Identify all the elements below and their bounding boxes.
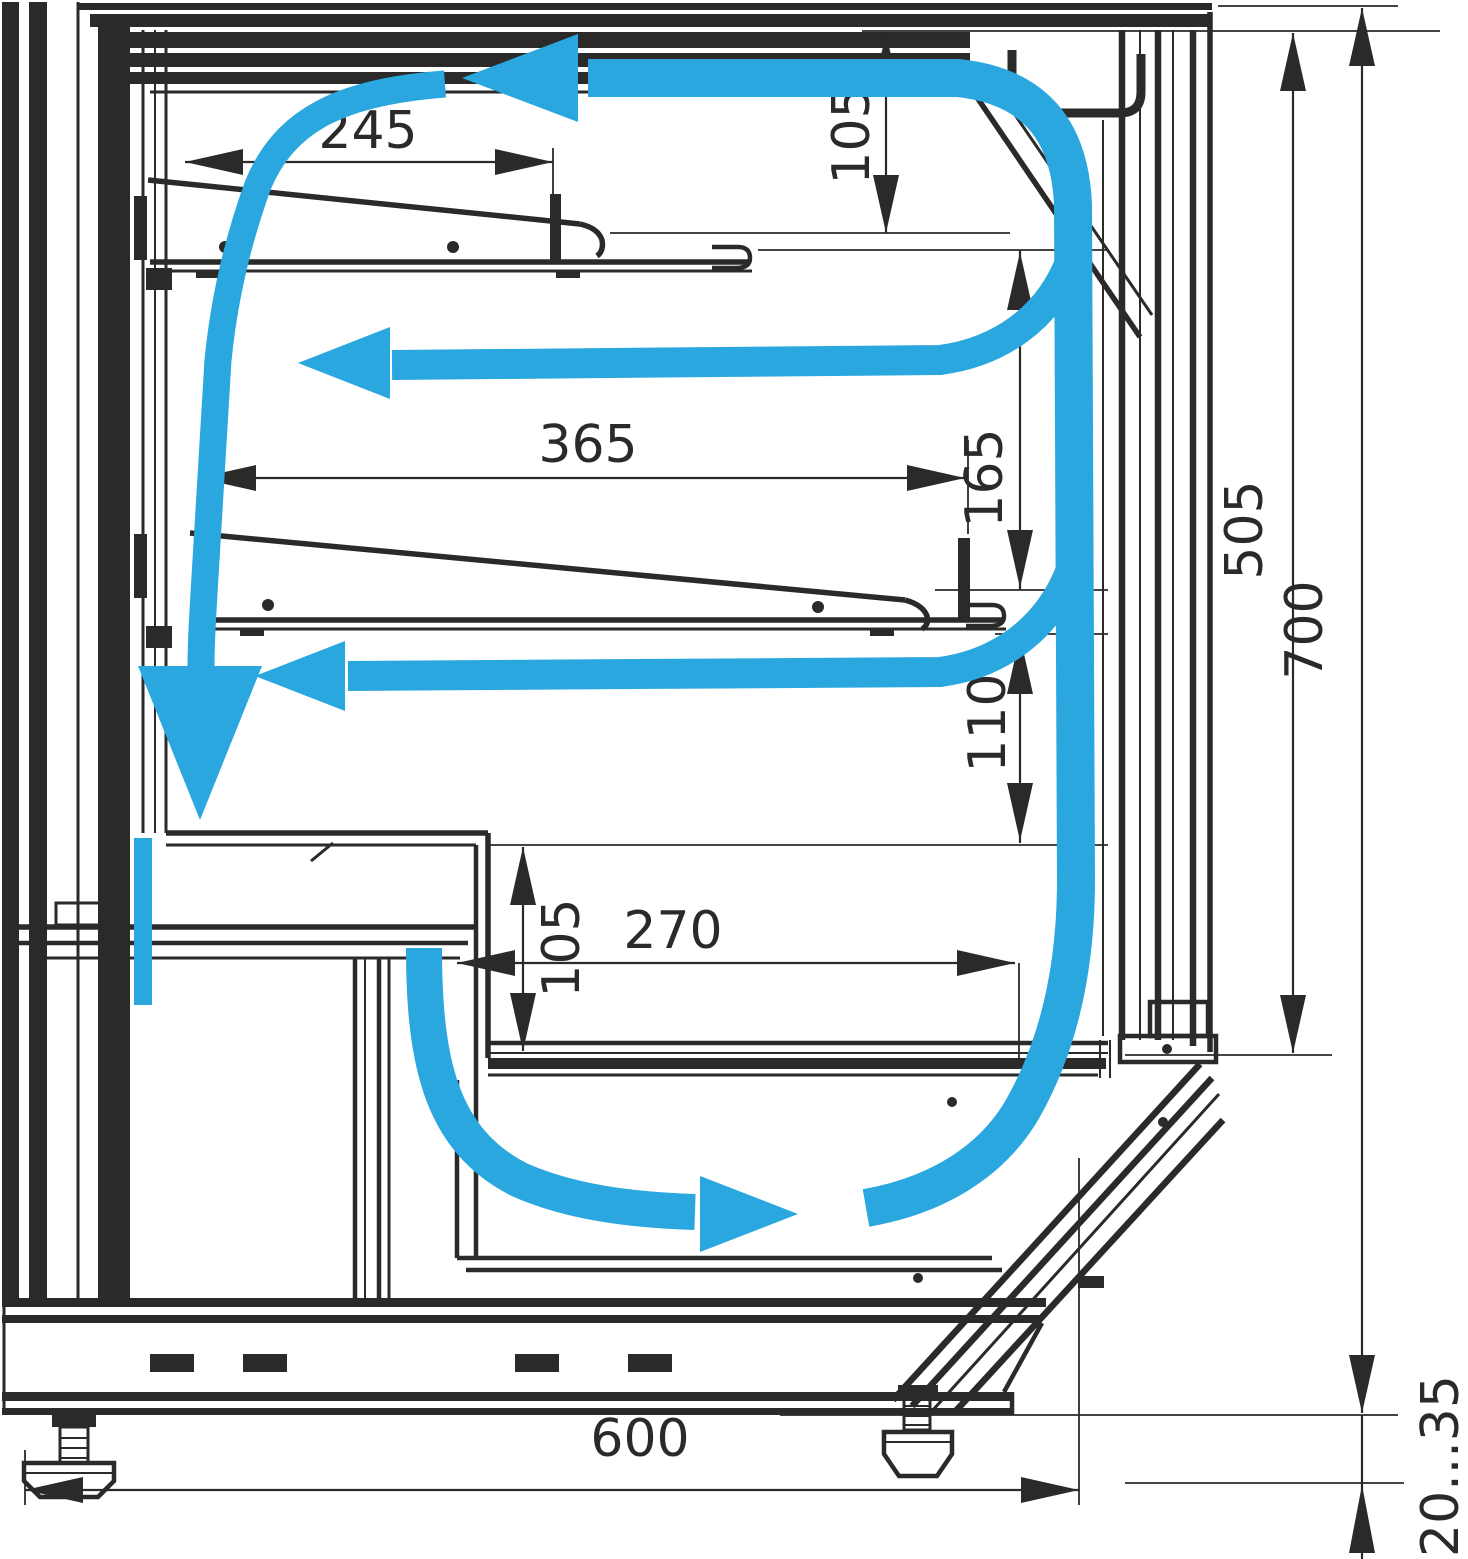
- base-mount: [150, 1354, 194, 1372]
- dim-label-365: 365: [538, 415, 637, 475]
- shelf-nose: [580, 224, 602, 256]
- shelf-top-surface: [148, 180, 580, 224]
- shelf-bolt: [812, 601, 824, 613]
- shelf-wall-bracket: [134, 534, 147, 598]
- dim-label-505: 505: [1215, 480, 1275, 579]
- dim-label-600: 600: [590, 1409, 689, 1469]
- panel-line: [912, 1078, 1212, 1406]
- shelf-tab: [196, 271, 220, 278]
- shelf-bolt: [447, 241, 459, 253]
- wall-screw: [102, 408, 110, 416]
- foot-pad: [884, 1432, 952, 1476]
- dim-label-105-well: 105: [532, 898, 592, 997]
- dim-label-165: 165: [955, 428, 1015, 527]
- base-rail: [2, 1298, 1046, 1307]
- wall-screw: [122, 410, 130, 418]
- dim-shelf-top-depth: 245: [185, 101, 553, 194]
- shelf-wall-hook: [146, 268, 172, 290]
- shelf-lower: [134, 533, 1006, 648]
- shelf-tab: [870, 629, 894, 636]
- base-mount: [515, 1354, 559, 1372]
- back-panel: [29, 2, 47, 1302]
- base-rail: [2, 1315, 1040, 1323]
- dim-label-105-top: 105: [822, 85, 882, 184]
- shelf-top-surface: [190, 533, 905, 600]
- airflow-arrow-left-middle: [298, 327, 390, 399]
- foot-nut: [898, 1385, 938, 1396]
- shelf-nose: [905, 600, 927, 629]
- dim-label-20-35: 20...35: [1411, 1375, 1468, 1557]
- canopy-top-skin: [78, 3, 1212, 10]
- shelf-tab: [240, 629, 264, 636]
- dim-label-110: 110: [958, 673, 1018, 772]
- sill-screw: [1162, 1044, 1172, 1054]
- panel-line: [893, 1064, 1200, 1400]
- foot-nut: [52, 1415, 96, 1427]
- base-mount: [628, 1354, 672, 1372]
- back-panel-inner: [98, 22, 130, 1302]
- price-rail: [550, 194, 561, 262]
- airflow-branch-middle: [392, 262, 1070, 365]
- shelf-wall-hook: [146, 626, 172, 648]
- base-mount: [243, 1354, 287, 1372]
- front-lower-panel: [893, 1064, 1223, 1414]
- price-rail: [958, 538, 970, 620]
- shelf-tab: [556, 271, 580, 278]
- display-deck: [457, 1043, 1108, 1288]
- dim-shelf-mid-depth: 365: [198, 415, 968, 534]
- dim-label-270: 270: [623, 901, 722, 961]
- airflow: [138, 34, 1076, 1252]
- airflow-arrow-left-lower: [255, 641, 345, 711]
- airflow-arrow-right-bottom: [700, 1176, 798, 1252]
- canopy-bar: [90, 14, 1208, 27]
- dim-leg-adjust: 20...35: [1125, 1375, 1468, 1559]
- well-screw: [913, 1273, 923, 1283]
- dim-well-height: 105: [488, 845, 1108, 1051]
- front-glass: [1100, 12, 1216, 1078]
- display-case-cross-section: 245 105 365 165: [0, 0, 1468, 1559]
- panel-screw: [1158, 1117, 1168, 1127]
- shelf-bolt: [262, 599, 274, 611]
- airflow-arrow-down-back: [138, 666, 262, 820]
- well-screw: [947, 1097, 957, 1107]
- technical-drawing-page: 245 105 365 165: [0, 0, 1468, 1559]
- base-frame: [2, 1298, 1046, 1415]
- shelf-front-bracket: [966, 605, 1004, 626]
- base-rail: [2, 1392, 1012, 1401]
- back-panel-outer: [2, 2, 19, 1302]
- deck-plate: [488, 1058, 1106, 1069]
- shelf-front-bracket: [712, 247, 750, 268]
- base-rail: [2, 1408, 1010, 1415]
- shelf-wall-bracket: [134, 196, 147, 260]
- dim-label-700: 700: [1275, 580, 1335, 679]
